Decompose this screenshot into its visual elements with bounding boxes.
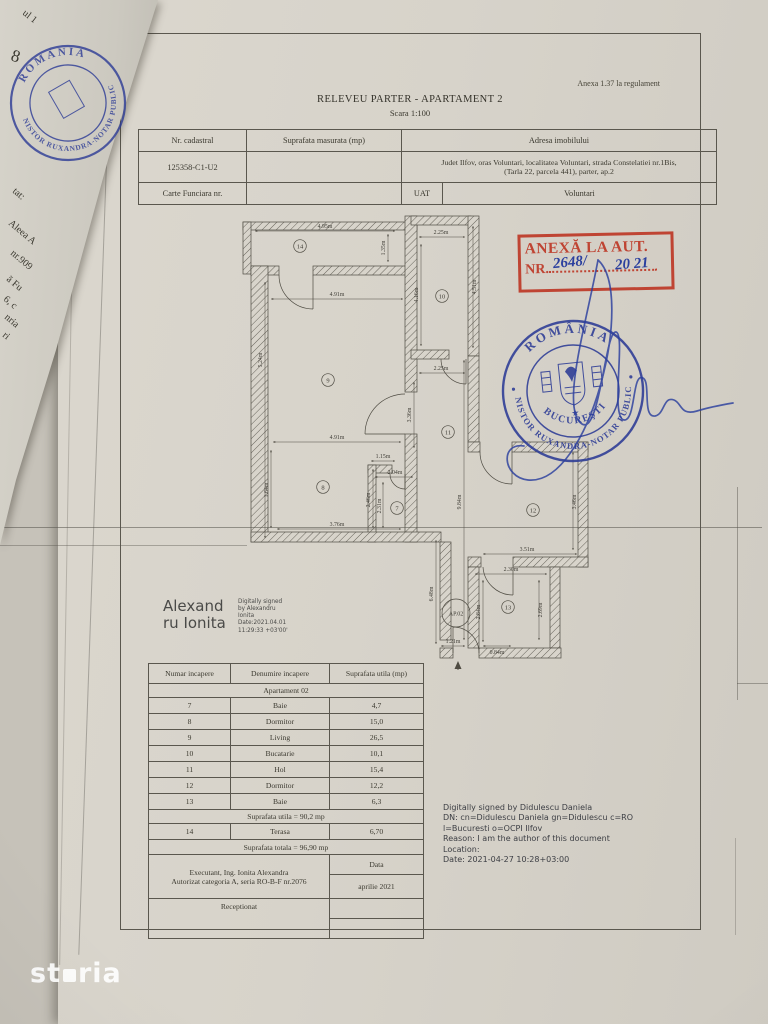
ionita-detail-line: 11:29:33 +03'00': [238, 628, 310, 635]
dim-living-w: 4.91m: [330, 292, 345, 298]
room-living: 9: [322, 374, 335, 387]
watermark-text-ria: ria: [78, 958, 122, 989]
scanned-document-photo: Anexa 1.37 la regulament RELEVEU PARTER …: [0, 0, 768, 1024]
watermark-text-st: st: [30, 958, 61, 989]
executant-line1: Executant, Ing. Ionita Alexandra: [151, 868, 327, 877]
room-area-cell: 4,7: [330, 698, 424, 714]
scan-artifact-line-3: [735, 838, 736, 935]
room-area-cell: 12,2: [330, 778, 424, 794]
date-label: Data: [330, 855, 424, 875]
measured-area-cell: [247, 152, 402, 183]
partial-notary-stamp: ROMÂNIA NISTOR RUXANDRA-NOTAR PUBLIC: [0, 18, 150, 183]
storia-watermark-logo: stria: [30, 958, 122, 989]
room-name-cell: Baie: [231, 794, 330, 810]
address-cell: Judet Ilfov, oras Voluntari, localitatea…: [402, 152, 717, 183]
col-address: Adresa imobilului: [402, 130, 717, 152]
room-number-cell: 8: [149, 714, 231, 730]
received-empty-cell-1: [330, 899, 424, 919]
dim-terrace-w: 4.95m: [318, 224, 333, 230]
room-name-cell: Hol: [231, 762, 330, 778]
scan-artifact-line-2: [737, 683, 768, 684]
room-number-14: 14: [297, 244, 304, 251]
received-label: Receptionat: [149, 899, 330, 939]
room-area-cell: 15,4: [330, 762, 424, 778]
address-line-1: Judet Ilfov, oras Voluntari, localitatea…: [404, 158, 714, 167]
ionita-detail-line: Digitally signed: [238, 599, 310, 606]
room-number-13: 13: [505, 605, 512, 612]
apartment-label-text: AP.02: [449, 612, 464, 618]
room-area-cell: 6,70: [330, 824, 424, 840]
dim-living-h: 5.24m: [258, 352, 264, 367]
table-row: 8 Dormitor 15,0: [149, 714, 424, 730]
entrance-arrow-icon: [455, 661, 462, 670]
room-number-cell: 12: [149, 778, 231, 794]
executant-line2: Autorizat categoria A, seria RO-B-F nr.2…: [151, 877, 327, 886]
areas-group-label: Apartament 02: [149, 684, 424, 698]
date-value: aprilie 2021: [330, 875, 424, 899]
room-areas-table: Numar incapere Denumire incapere Suprafa…: [148, 663, 424, 939]
dim-bed1-h-left: 1.64m: [264, 482, 270, 497]
dim-bath1-h-right: 2.31m: [377, 498, 383, 513]
room-name-cell: Terasa: [231, 824, 330, 840]
room-number-cell: 13: [149, 794, 231, 810]
table-row: 14 Terasa 6,70: [149, 824, 424, 840]
scan-crease-line-2: [0, 545, 247, 546]
room-bath2: 13: [502, 601, 515, 614]
room-number-9: 9: [326, 378, 329, 385]
ionita-detail-line: by Alexandru: [238, 606, 310, 613]
dim-bath1-w: 2.04m: [388, 470, 403, 476]
room-number-8: 8: [321, 485, 324, 492]
didulescu-line: Location:: [443, 845, 693, 855]
room-terrace: 14: [294, 240, 307, 253]
table-row: 11 Hol 15,4: [149, 762, 424, 778]
areas-subtotal: Suprafata utila = 90,2 mp: [149, 810, 424, 824]
didulescu-line: DN: cn=Didulescu Daniela gn=Didulescu c=…: [443, 813, 693, 823]
notary-handwritten-signature: [440, 230, 768, 520]
table-row: 13 Baie 6,3: [149, 794, 424, 810]
table-row: 10 Bucatarie 10,1: [149, 746, 424, 762]
dim-bath2-w: 2.30m: [504, 567, 519, 573]
table-row: 7 Baie 4,7: [149, 698, 424, 714]
dim-bath2-h-right: 2.69m: [538, 602, 544, 617]
executant-cell: Executant, Ing. Ionita Alexandra Autoriz…: [149, 855, 330, 899]
room-number-7: 7: [395, 506, 399, 513]
dim-kitchen-h-left: 4.16m: [414, 287, 420, 302]
didulescu-line: l=Bucuresti o=OCPI Ilfov: [443, 824, 693, 834]
table-row: 9 Living 26,5: [149, 730, 424, 746]
room-name-cell: Dormitor: [231, 714, 330, 730]
cf-value-cell: [247, 183, 402, 205]
room-name-cell: Baie: [231, 698, 330, 714]
room-name-cell: Bucatarie: [231, 746, 330, 762]
ionita-signature-details: Digitally signed by Alexandru Ionita Dat…: [238, 599, 310, 635]
room-number-cell: 7: [149, 698, 231, 714]
room-area-cell: 15,0: [330, 714, 424, 730]
dim-bed1-w: 4.91m: [330, 435, 345, 441]
dim-bath1-gap: 1.15m: [376, 454, 391, 460]
room-bed1: 8: [317, 481, 330, 494]
room-area-cell: 10,1: [330, 746, 424, 762]
dim-hall-h: 3.36m: [407, 407, 413, 422]
dim-bath2-bottom: 0.84m: [490, 650, 505, 656]
didulescu-line: Reason: I am the author of this document: [443, 834, 693, 844]
room-area-cell: 26,5: [330, 730, 424, 746]
col-area: Suprafata masurata (mp): [247, 130, 402, 152]
received-empty-cell-2: [330, 919, 424, 939]
areas-header-number: Numar incapere: [149, 664, 231, 684]
uat-label: UAT: [402, 183, 443, 205]
dim-terrace-d: 1.35m: [381, 240, 387, 255]
cadastral-header-table: Nr. cadastral Suprafata masurata (mp) Ad…: [138, 129, 717, 205]
room-bath1: 7: [391, 502, 404, 515]
svg-text:ROMÂNIA: ROMÂNIA: [11, 35, 92, 87]
room-number-cell: 10: [149, 746, 231, 762]
room-name-cell: Dormitor: [231, 778, 330, 794]
dim-bath2-h-left: 2.84m: [476, 604, 482, 619]
ionita-signature-name: Alexand ru Ionita: [163, 598, 226, 631]
room-number-cell: 14: [149, 824, 231, 840]
didulescu-signature-block: Digitally signed by Didulescu Daniela DN…: [443, 803, 693, 865]
areas-total: Suprafata totala = 96,90 mp: [149, 840, 424, 855]
didulescu-line: Digitally signed by Didulescu Daniela: [443, 803, 693, 813]
dim-entry-w: 1.21m: [446, 639, 461, 645]
ionita-name-line2: ru Ionita: [163, 615, 226, 632]
page-title: RELEVEU PARTER - APARTAMENT 2: [120, 94, 700, 105]
room-number-cell: 11: [149, 762, 231, 778]
dim-corridor-h: 6.48m: [429, 586, 435, 601]
room-name-cell: Living: [231, 730, 330, 746]
scan-artifact-line: [737, 487, 738, 700]
address-line-2: (Tarla 22, parcela 441), parter, ap.2: [404, 167, 714, 176]
didulescu-line: Date: 2021-04-27 10:28+03:00: [443, 855, 693, 865]
room-area-cell: 6,3: [330, 794, 424, 810]
ionita-name-line1: Alexand: [163, 598, 226, 615]
areas-header-name: Denumire incapere: [231, 664, 330, 684]
watermark-square-o-icon: [63, 969, 76, 982]
partial-stamp-country: ROMÂNIA: [11, 35, 92, 87]
table-row: 12 Dormitor 12,2: [149, 778, 424, 794]
ionita-detail-line: Date:2021.04.01: [238, 620, 310, 627]
uat-value: Voluntari: [443, 183, 717, 205]
ionita-detail-line: Ionita: [238, 613, 310, 620]
annex-regulation-note: Anexa 1.37 la regulament: [520, 79, 660, 88]
areas-header-area: Suprafata utila (mp): [330, 664, 424, 684]
plan-scale: Scara 1:100: [120, 108, 700, 118]
dim-bed2-w: 3.51m: [520, 547, 535, 553]
dim-bath1-h-left: 2.46m: [366, 492, 372, 507]
room-number-cell: 9: [149, 730, 231, 746]
